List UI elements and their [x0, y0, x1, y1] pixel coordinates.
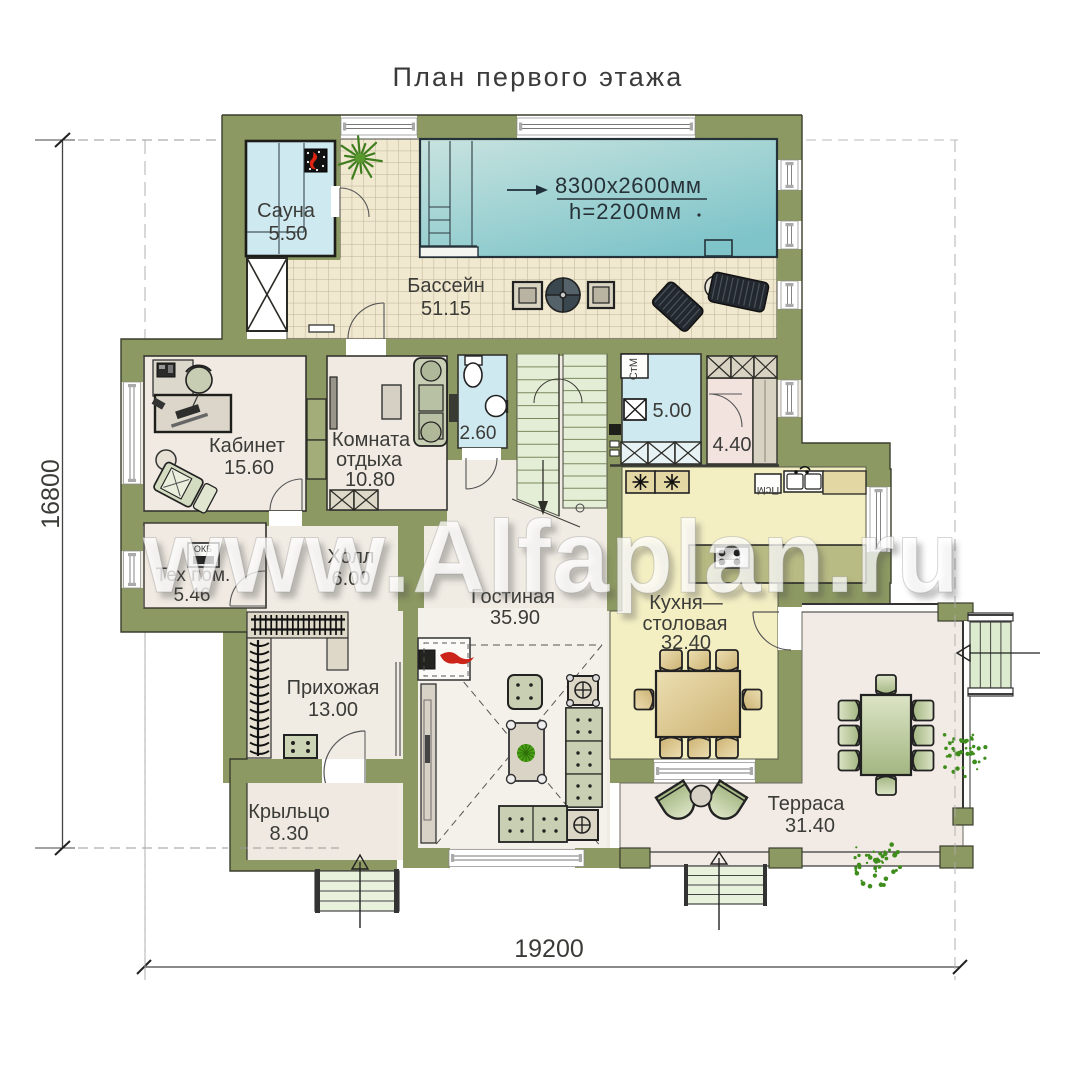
svg-text:Терраса: Терраса	[768, 793, 846, 815]
svg-text:31.40: 31.40	[785, 815, 835, 837]
svg-text:8300х2600мм: 8300х2600мм	[555, 173, 701, 198]
svg-text:19200: 19200	[514, 935, 584, 963]
svg-text:5.50: 5.50	[269, 223, 308, 245]
svg-text:ПсМ: ПсМ	[757, 484, 780, 496]
svg-text:www.Alfaplan.ru: www.Alfaplan.ru	[142, 499, 959, 614]
svg-text:4.40: 4.40	[713, 434, 752, 456]
svg-text:10.80: 10.80	[345, 469, 395, 491]
svg-text:Бассейн: Бассейн	[407, 275, 485, 297]
svg-text:отдыха: отдыха	[336, 449, 403, 471]
svg-text:Комната: Комната	[332, 429, 411, 451]
svg-text:51.15: 51.15	[421, 298, 471, 320]
svg-text:h=2200мм: h=2200мм	[569, 199, 681, 224]
svg-text:13.00: 13.00	[308, 699, 358, 721]
svg-text:5.00: 5.00	[653, 400, 692, 422]
svg-text:Кабинет: Кабинет	[209, 435, 285, 457]
svg-text:Сауна: Сауна	[257, 200, 316, 222]
svg-text:2.60: 2.60	[460, 423, 497, 444]
svg-text:План первого этажа: План первого этажа	[392, 62, 683, 92]
svg-text:Крыльцо: Крыльцо	[248, 801, 330, 823]
svg-text:16800: 16800	[37, 459, 65, 529]
svg-text:8.30: 8.30	[270, 823, 309, 845]
svg-text:СтМ: СтМ	[628, 358, 640, 380]
svg-text:Прихожая: Прихожая	[287, 677, 380, 699]
svg-text:15.60: 15.60	[224, 457, 274, 479]
